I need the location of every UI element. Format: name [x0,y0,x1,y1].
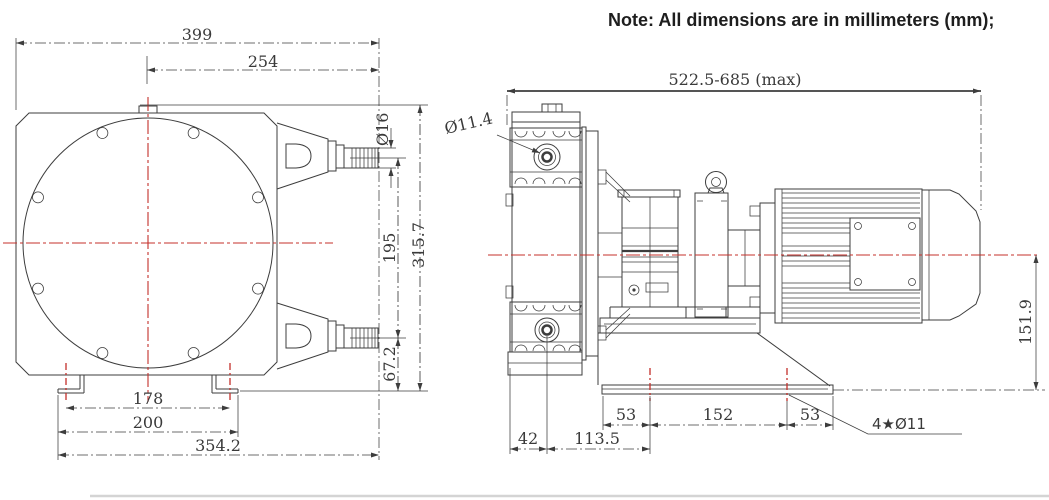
lifting-eyebolt [706,172,727,193]
side-pump-head [506,104,582,375]
dim-front-overall-base-width: 354.2 [195,436,241,455]
flange-disc [582,127,630,360]
motor [750,189,980,323]
dim-front-overall-height: 315.7 [409,222,428,268]
front-extension-lines [16,38,428,460]
dim-side-port-to-first-hole: 113.5 [574,429,620,448]
pump-housing-outline [16,113,277,375]
side-extension-lines [507,95,1045,454]
engineering-drawing-page: 399 254 Ø16 195 315.7 67.2 178 200 354.2 [0,0,1049,500]
dim-front-foot-hole-pitch: 178 [133,389,164,408]
dim-side-mount-holes: 4★Ø11 [872,415,926,433]
dim-side-center-height: 151.9 [1016,299,1035,345]
dim-side-base-hole-left: 53 [616,405,636,424]
side-centerlines [488,255,1040,401]
dim-front-foot-width: 200 [133,413,164,432]
dim-side-head-edge-to-port: 42 [518,429,538,448]
front-centerlines [3,97,333,402]
side-dimension-lines [497,91,1036,449]
front-view: 399 254 Ø16 195 315.7 67.2 178 200 354.2 [3,25,428,460]
dim-side-base-hole-right: 53 [800,405,820,424]
dim-front-port-spacing: 195 [380,233,399,264]
dim-front-center-to-port-end: 254 [248,52,279,71]
units-note: Note: All dimensions are in millimeters … [608,10,994,30]
dim-side-port-bore: Ø11.4 [443,108,495,137]
dim-side-base-hole-pitch: 152 [703,405,734,424]
dim-front-port-to-base: 67.2 [380,346,399,382]
gearbox [600,172,760,334]
dim-front-overall-width: 399 [182,25,213,44]
base-plate [598,333,833,394]
motor-terminal-plate [850,218,920,290]
side-view: 522.5-685 (max) Ø11.4 42 113.5 53 152 53… [443,70,1045,454]
drawing-canvas: 399 254 Ø16 195 315.7 67.2 178 200 354.2 [0,0,1049,500]
dim-side-overall-length: 522.5-685 (max) [668,70,801,89]
top-hose-port [277,123,378,189]
dim-front-port-od: Ø16 [373,113,392,146]
bottom-hose-port [277,303,378,369]
